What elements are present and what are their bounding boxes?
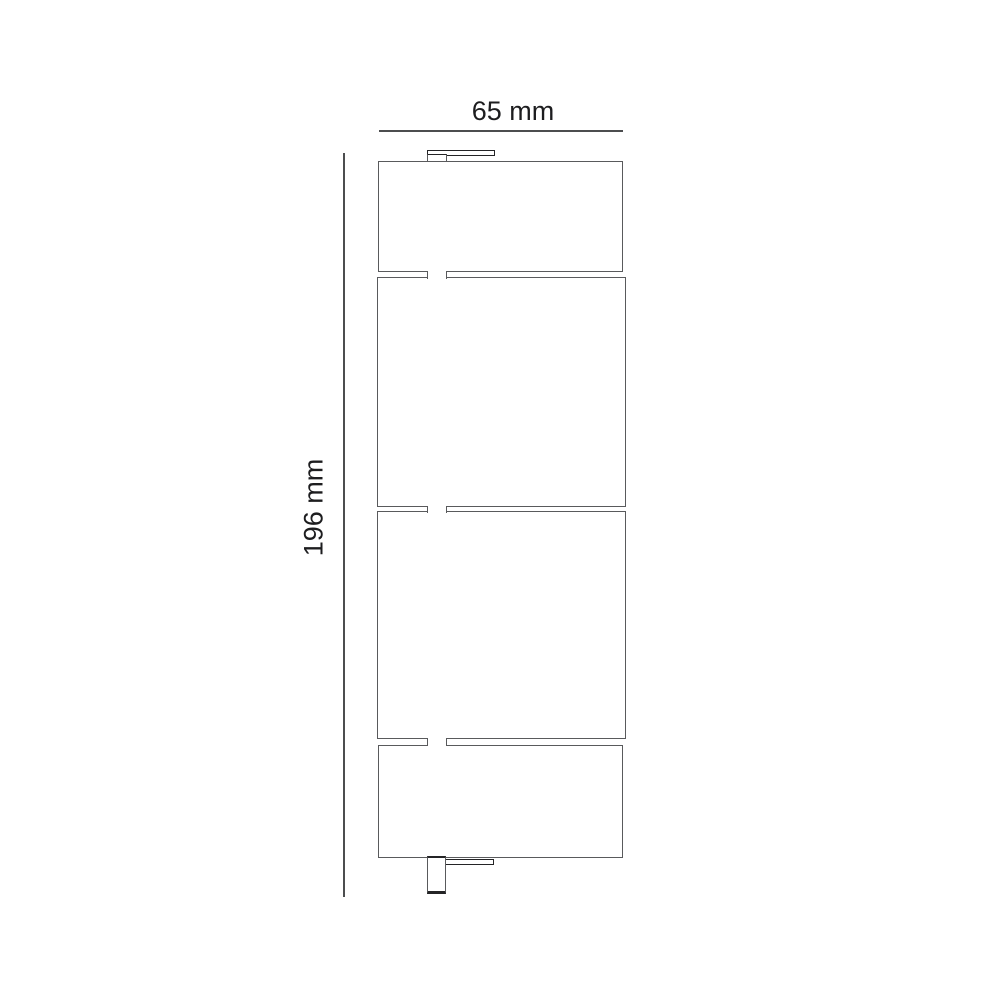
drawing-canvas: 65 mm 196 mm — [0, 0, 1000, 1000]
panel-junction-tab-2 — [427, 506, 447, 513]
height-dimension-label: 196 mm — [301, 408, 328, 608]
panel-lower-middle — [377, 511, 626, 739]
bottom-mounting-bracket-bar — [444, 859, 494, 865]
panel-junction-tab-3 — [427, 738, 447, 747]
panel-bottom — [378, 745, 623, 858]
bottom-connector-plug — [427, 856, 446, 894]
panel-upper-middle — [377, 277, 626, 507]
panel-top — [378, 161, 623, 272]
height-dimension-line — [343, 153, 345, 897]
width-dimension-label: 65 mm — [413, 98, 613, 125]
width-dimension-line — [379, 130, 623, 132]
panel-junction-tab-1 — [427, 271, 447, 279]
